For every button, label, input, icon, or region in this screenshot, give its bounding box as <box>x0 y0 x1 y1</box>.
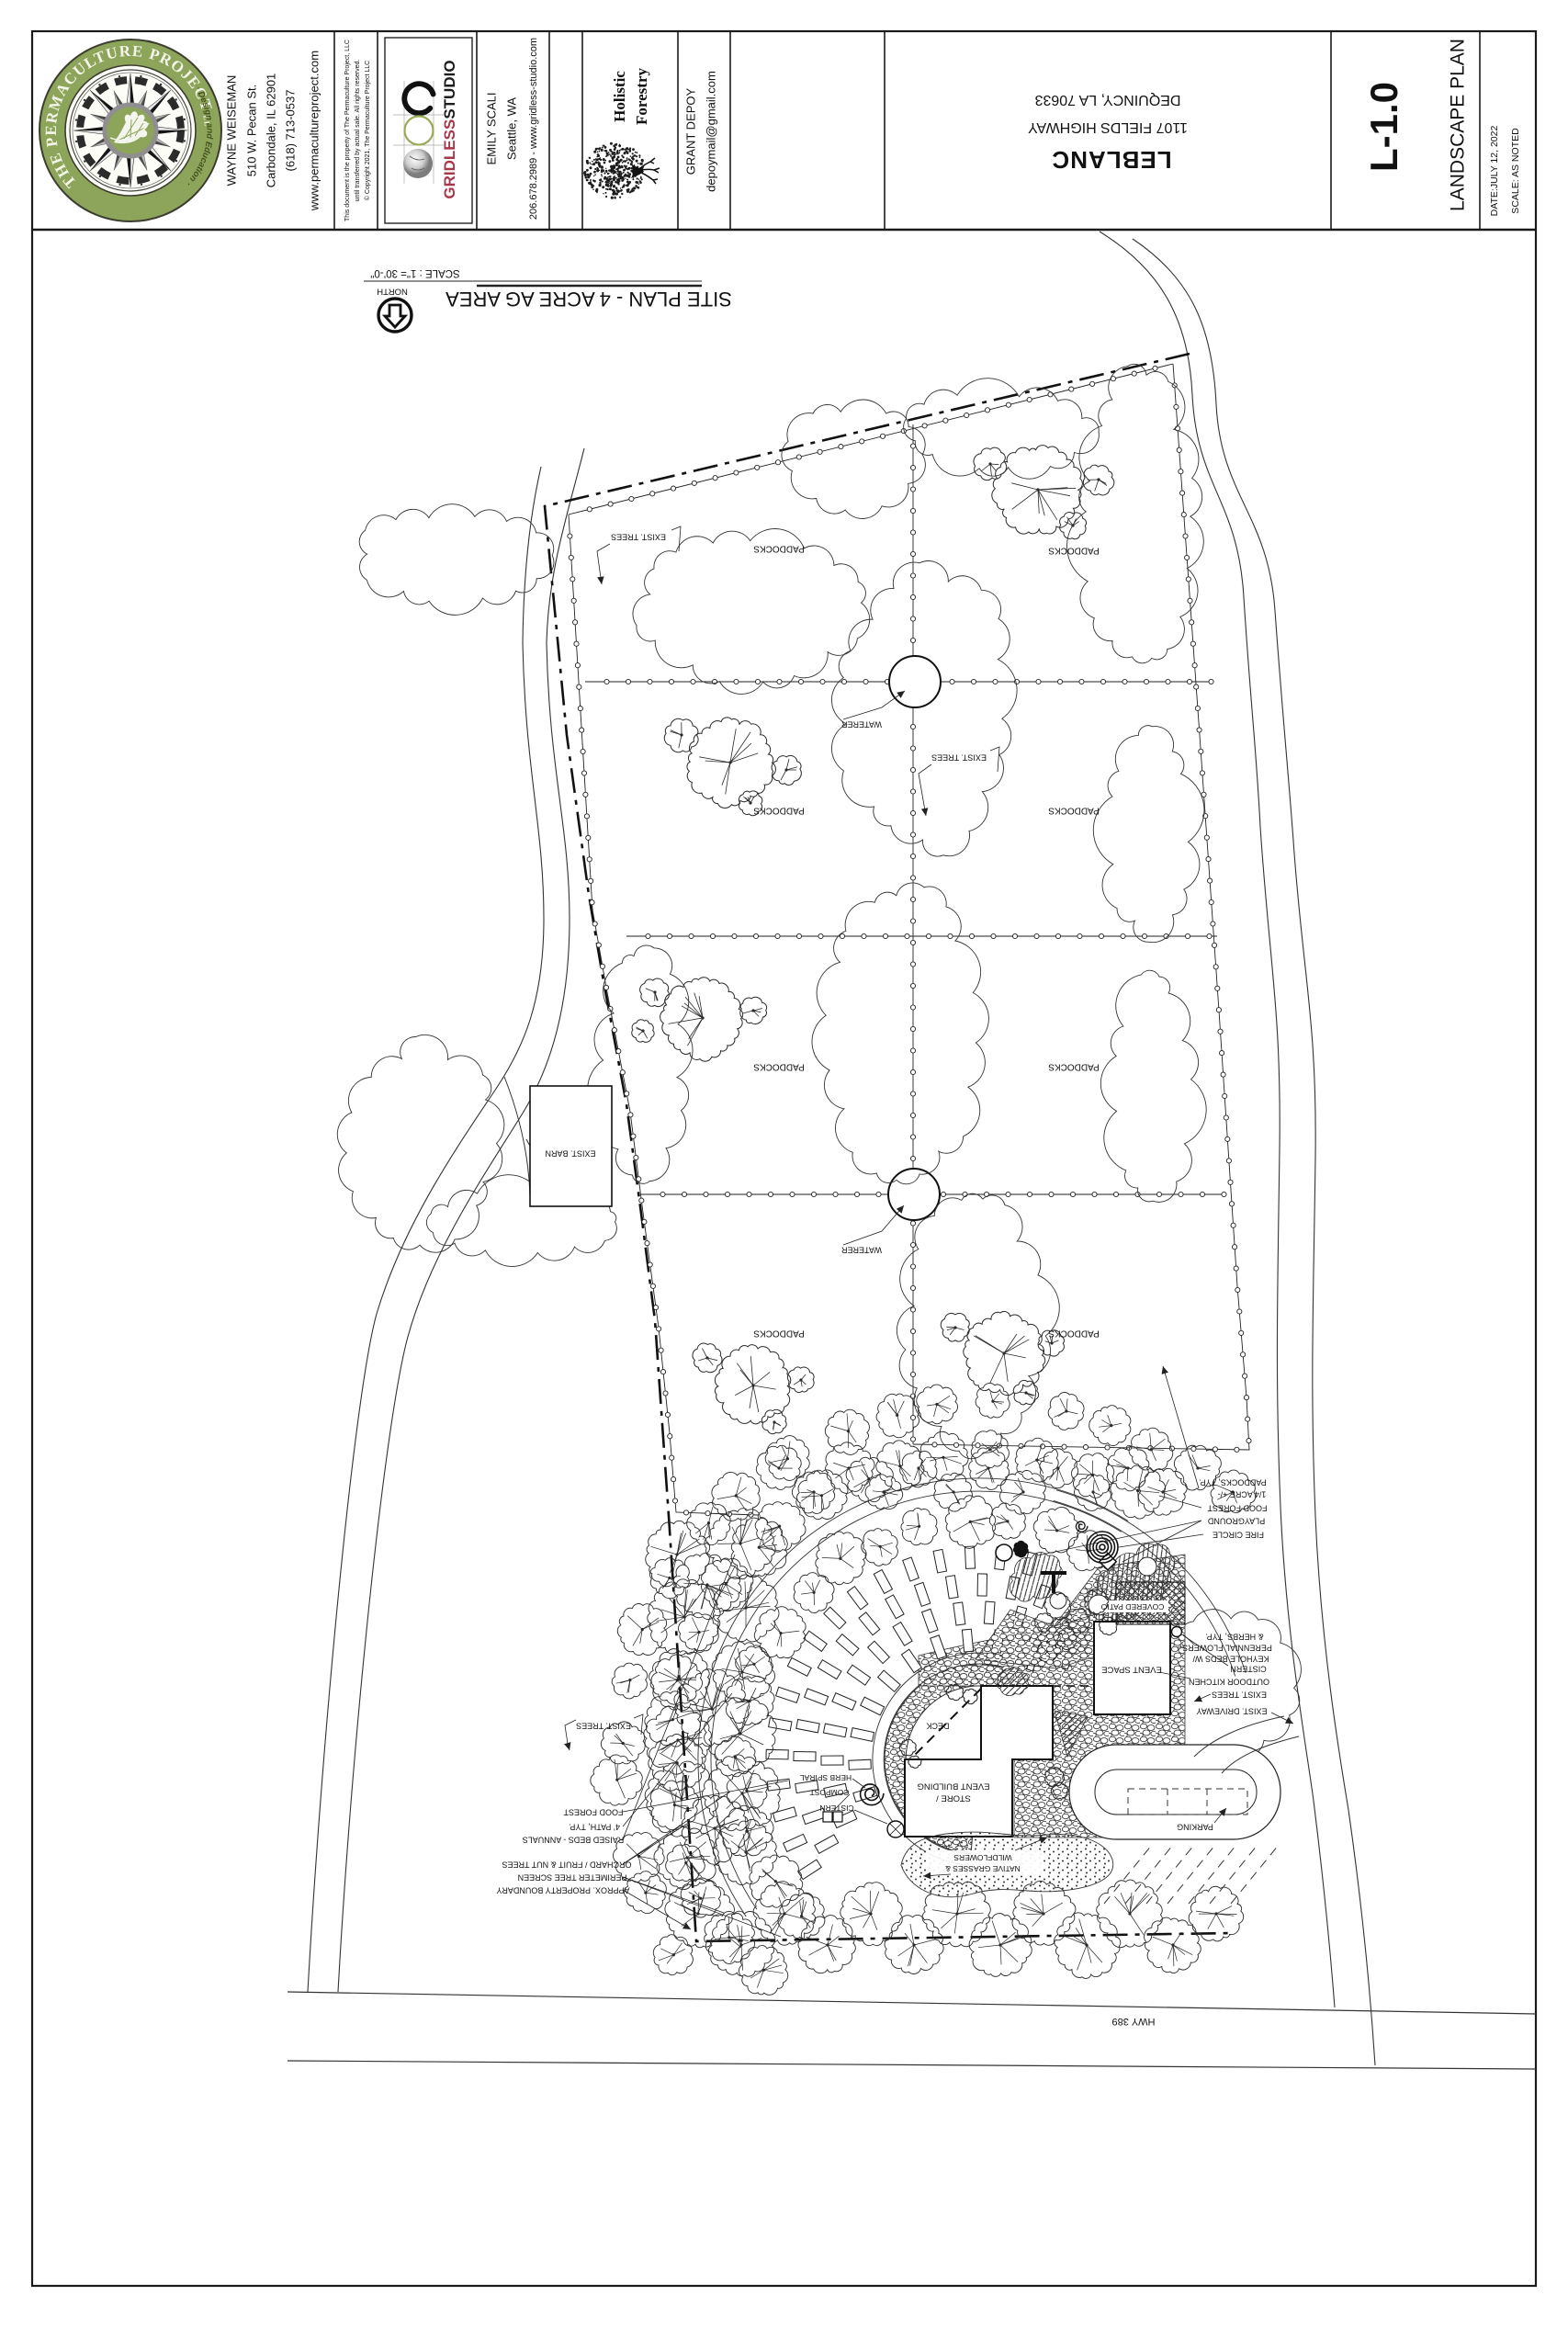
svg-text:OUTDOOR KITCHEN: OUTDOOR KITCHEN <box>1189 1678 1269 1687</box>
svg-text:PERIMETER TREE SCREEN: PERIMETER TREE SCREEN <box>518 1873 627 1883</box>
svg-text:WAYNE WEISEMAN: WAYNE WEISEMAN <box>224 75 238 187</box>
svg-text:Seattle, WA: Seattle, WA <box>504 97 518 160</box>
svg-text:4ʼ PATH, TYP.: 4ʼ PATH, TYP. <box>569 1823 620 1832</box>
svg-text:EXIST. TREES: EXIST. TREES <box>611 533 666 542</box>
svg-text:EXIST. DRIVEWAY: EXIST. DRIVEWAY <box>1196 1707 1267 1716</box>
svg-text:FOOD FOREST: FOOD FOREST <box>1207 1504 1268 1513</box>
svg-text:SCALE: AS NOTED: SCALE: AS NOTED <box>1510 128 1521 214</box>
svg-text:EXIST. TREES: EXIST. TREES <box>576 1722 631 1731</box>
svg-text:WATERER: WATERER <box>841 720 882 729</box>
svg-text:PADDOCKS, TYP.: PADDOCKS, TYP. <box>1199 1478 1267 1487</box>
svg-text:CISTERN: CISTERN <box>1230 1665 1267 1674</box>
svg-text:PADDOCKS: PADDOCKS <box>753 543 805 553</box>
svg-text:DEQUINCY, LA 70633: DEQUINCY, LA 70633 <box>1034 92 1180 107</box>
svg-text:Forestry: Forestry <box>633 68 650 125</box>
svg-text:RAISED BEDS - ANNUALS: RAISED BEDS - ANNUALS <box>523 1836 625 1845</box>
svg-text:EXIST. TREES: EXIST. TREES <box>931 753 987 763</box>
svg-text:EXIST. BARN: EXIST. BARN <box>545 1149 595 1159</box>
svg-text:ORCHARD / FRUIT & NUT TREES: ORCHARD / FRUIT & NUT TREES <box>502 1860 631 1870</box>
svg-text:APPROX. PROPERTY BOUNDARY: APPROX. PROPERTY BOUNDARY <box>496 1886 629 1895</box>
svg-text:EXIST. TREES: EXIST. TREES <box>1212 1690 1267 1700</box>
svg-text:PLAYGROUND: PLAYGROUND <box>1207 1517 1265 1526</box>
svg-text:DATE:JULY 12, 2022: DATE:JULY 12, 2022 <box>1489 126 1500 217</box>
svg-text:LANDSCAPE PLAN: LANDSCAPE PLAN <box>1448 39 1469 211</box>
svg-text:until transferred by actual sa: until transferred by actual sale. All ri… <box>355 60 361 202</box>
svg-text:depoymail@gmail.com: depoymail@gmail.com <box>704 71 717 192</box>
svg-text:PARKING: PARKING <box>1177 1823 1213 1832</box>
svg-text:EVENT SPACE: EVENT SPACE <box>1101 1664 1162 1674</box>
svg-text:KEYHOLE BEDS W/: KEYHOLE BEDS W/ <box>1192 1655 1269 1664</box>
svg-text:PADDOCKS: PADDOCKS <box>753 805 805 815</box>
svg-text:PADDOCKS: PADDOCKS <box>1048 1328 1100 1338</box>
svg-text:206.678.2989 - www.gridless-: 206.678.2989 - www.gridless-studio.com <box>528 38 539 220</box>
svg-text:& HERBS, TYP.: & HERBS, TYP. <box>1205 1633 1263 1642</box>
svg-text:(618) 713-0537: (618) 713-0537 <box>283 90 297 172</box>
svg-text:Holistic: Holistic <box>611 71 628 122</box>
svg-text:NATIVE GRASSES &: NATIVE GRASSES & <box>945 1864 1021 1873</box>
svg-text:FIRE CIRCLE: FIRE CIRCLE <box>1213 1531 1264 1540</box>
svg-text:CISTERN: CISTERN <box>819 1804 853 1813</box>
svg-text:EMILY SCALI: EMILY SCALI <box>484 93 498 165</box>
svg-text:PADDOCKS: PADDOCKS <box>753 1061 805 1071</box>
svg-text:This document is the property: This document is the property of The Per… <box>344 40 351 221</box>
svg-text:GRANT DEPOY: GRANT DEPOY <box>683 87 697 175</box>
svg-text:SCALE : 1"= 30ʼ-0": SCALE : 1"= 30ʼ-0" <box>370 267 459 278</box>
svg-text:1107 FIELDS HIGHWAY: 1107 FIELDS HIGHWAY <box>1028 119 1188 135</box>
svg-text:NORTH: NORTH <box>377 286 408 296</box>
svg-text:HERB SPIRAL: HERB SPIRAL <box>800 1773 852 1782</box>
svg-text:PADDOCKS: PADDOCKS <box>1048 545 1100 555</box>
svg-text:COMPOST: COMPOST <box>810 1788 850 1797</box>
svg-text:510 W. Pecan St.: 510 W. Pecan St. <box>244 85 258 176</box>
svg-text:Carbondale, IL 62901: Carbondale, IL 62901 <box>264 73 277 188</box>
svg-text:DECK: DECK <box>926 1722 949 1731</box>
svg-text:www.permacultureproject.com: www.permacultureproject.com <box>307 51 321 211</box>
svg-text:SITE PLAN - 4 ACRE AG AREA: SITE PLAN - 4 ACRE AG AREA <box>446 288 732 311</box>
svg-text:PADDOCKS: PADDOCKS <box>1048 805 1100 815</box>
svg-text:GRIDLESSSTUDIO: GRIDLESSSTUDIO <box>441 60 458 198</box>
svg-text:L-1.0: L-1.0 <box>1362 82 1405 172</box>
svg-text:HWY 389: HWY 389 <box>1112 2016 1156 2027</box>
svg-text:WATERER: WATERER <box>841 1246 882 1255</box>
svg-text:PADDOCKS: PADDOCKS <box>1048 1061 1100 1071</box>
svg-text:WILDFLOWERS: WILDFLOWERS <box>953 1853 1012 1862</box>
svg-text:EVENT BUILDING: EVENT BUILDING <box>917 1781 989 1791</box>
svg-text:FOOD FOREST: FOOD FOREST <box>563 1808 624 1817</box>
svg-text:© Copyright 2021, The Permacul: © Copyright 2021, The Permaculture Proje… <box>364 61 371 201</box>
svg-text:LEBLANC: LEBLANC <box>1051 146 1171 174</box>
svg-text:PADDOCKS: PADDOCKS <box>753 1328 805 1338</box>
svg-text:COVERED PATIO: COVERED PATIO <box>1100 1602 1164 1611</box>
svg-text:1/4 ACRE +/-: 1/4 ACRE +/- <box>1218 1490 1267 1499</box>
svg-text:PERENNIAL FLOWERS: PERENNIAL FLOWERS <box>1182 1644 1272 1653</box>
svg-text:STORE /: STORE / <box>936 1792 971 1803</box>
